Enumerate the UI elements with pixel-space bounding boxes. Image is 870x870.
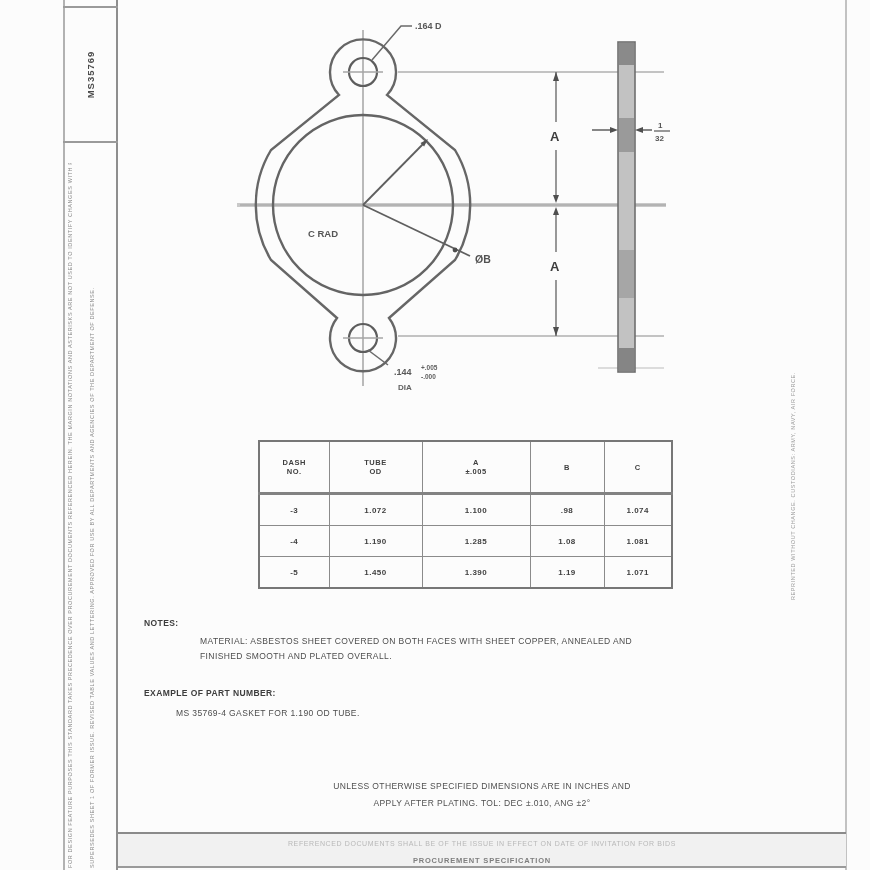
sheet-number-box-bottom [63, 141, 118, 143]
dim-label-a-lower: A [550, 259, 560, 274]
dim-arrow-mid-lower-icon [553, 207, 559, 215]
col-header-c: C [604, 441, 672, 494]
table-row: -4 1.190 1.285 1.08 1.081 [259, 526, 672, 557]
sheet-number: MS35769 [85, 51, 96, 99]
side-view-shade-4 [619, 348, 634, 371]
example-line: MS 35769-4 GASKET FOR 1.190 OD TUBE. [176, 708, 360, 718]
thickness-arrow-right-icon [635, 127, 643, 133]
table-row: -5 1.450 1.390 1.19 1.071 [259, 557, 672, 589]
dim-arrow-top-icon [553, 72, 559, 81]
tolerance-line-2: APPLY AFTER PLATING. TOL: DEC ±.010, ANG… [118, 795, 846, 812]
side-view-shade-1 [619, 43, 634, 65]
dimension-table: DASHNO. TUBEOD A±.005 B C -3 1.072 1.100… [258, 440, 673, 589]
sheet-number-box: MS35769 [65, 8, 116, 141]
example-heading: EXAMPLE OF PART NUMBER: [144, 688, 276, 698]
footer-spec-line: PROCUREMENT SPECIFICATION [118, 856, 846, 865]
bottom-callout-leader [368, 350, 388, 365]
bottom-callout-tol-plus: +.005 [421, 364, 438, 371]
thickness-frac-num: 1 [658, 121, 663, 130]
radius-arrow-line [363, 141, 426, 205]
side-view-shade-3 [619, 250, 634, 298]
left-margin-note-2: SUPERSEDES SHEET 1 OF FORMER ISSUE. REVI… [89, 236, 95, 868]
bore-label: ØB [475, 253, 491, 265]
side-view-bar [618, 42, 635, 372]
dim-arrow-mid-upper-icon [553, 195, 559, 203]
col-header-tube-od: TUBEOD [329, 441, 422, 494]
notes-line-1: MATERIAL: ASBESTOS SHEET COVERED ON BOTH… [200, 636, 632, 646]
bottom-callout-tol-minus: -.000 [421, 373, 436, 380]
table-row: -3 1.072 1.100 .98 1.074 [259, 494, 672, 526]
side-view-shade-2 [619, 118, 634, 152]
footer-reference-line: REFERENCED DOCUMENTS SHALL BE OF THE ISS… [118, 840, 846, 847]
notes-heading: NOTES: [144, 618, 179, 628]
drawing-views: C RAD ØB .164 D .144 +.005 -.000 DIA A A… [118, 0, 858, 430]
col-header-dash-no: DASHNO. [259, 441, 329, 494]
col-header-b: B [530, 441, 604, 494]
top-callout-text: .164 D [415, 21, 442, 31]
drawing-sheet: MS35769 FOR DESIGN FEATURE PURPOSES THIS… [0, 0, 870, 870]
footer-bottom-rule [118, 866, 846, 868]
dim-label-a-upper: A [550, 129, 560, 144]
bore-leader-dot [453, 248, 458, 253]
thickness-frac-den: 32 [655, 134, 664, 143]
bottom-callout-dim: .144 [394, 367, 412, 377]
col-header-a: A±.005 [422, 441, 530, 494]
table-header-row: DASHNO. TUBEOD A±.005 B C [259, 441, 672, 494]
radius-label: C RAD [308, 228, 338, 239]
bottom-callout-suffix: DIA [398, 383, 412, 392]
tolerance-line-1: UNLESS OTHERWISE SPECIFIED DIMENSIONS AR… [118, 778, 846, 795]
dim-arrow-bottom-icon [553, 327, 559, 336]
thickness-arrow-left-icon [610, 127, 618, 133]
left-margin-note-1: FOR DESIGN FEATURE PURPOSES THIS STANDAR… [67, 163, 73, 868]
notes-line-2: FINISHED SMOOTH AND PLATED OVERALL. [200, 651, 392, 661]
